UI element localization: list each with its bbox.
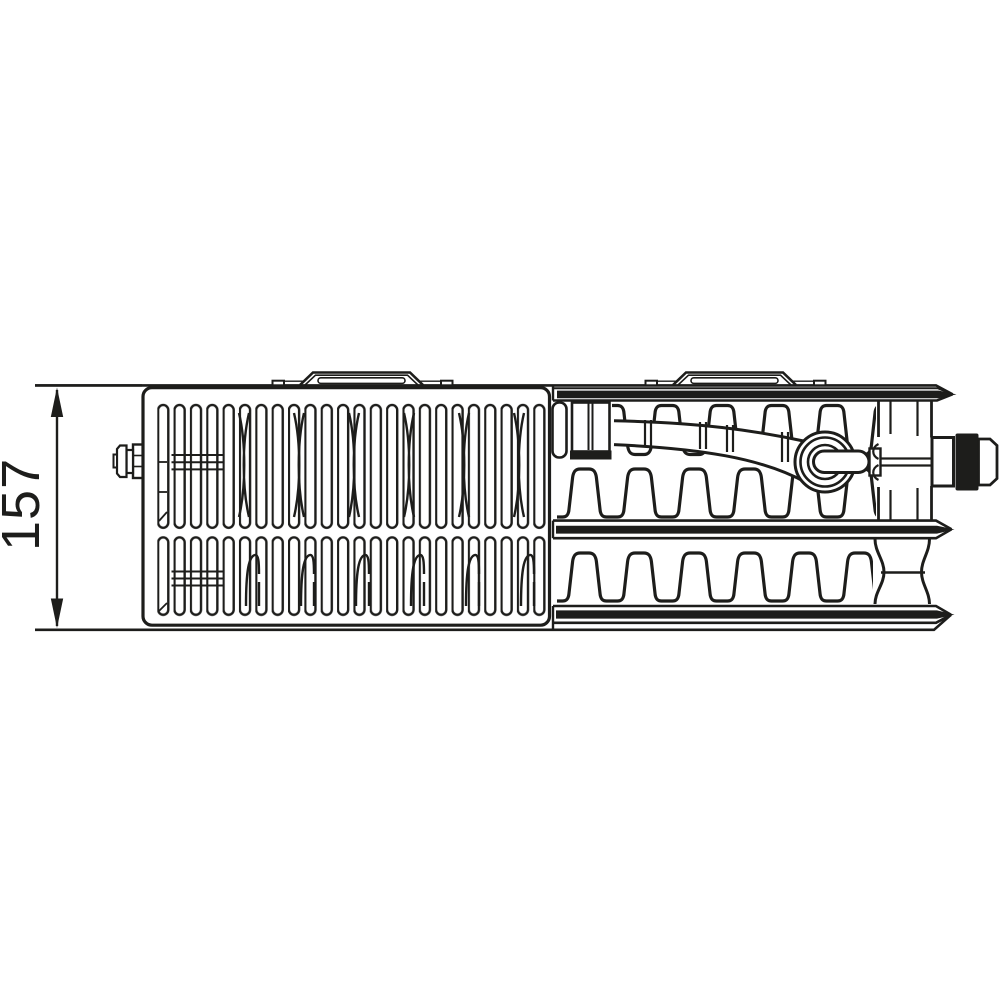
end-plate-vase [875, 539, 930, 604]
bracket-foot [273, 381, 285, 386]
bracket-foot [441, 381, 453, 386]
knurled-ring [956, 434, 979, 491]
left-plug-fitting [114, 445, 145, 479]
bracket-foot [646, 381, 658, 386]
dimension-annotation: 157 [0, 385, 142, 629]
radiator-technical-drawing-page: 157 [0, 0, 1000, 1000]
valve-body [932, 438, 954, 487]
wall-bracket-right [646, 373, 826, 386]
arrowhead-down-icon [51, 599, 63, 629]
radiator-grille [143, 388, 550, 626]
valve-tail-fitting [932, 434, 997, 491]
arrowhead-up-icon [51, 388, 63, 418]
bracket-foot [814, 381, 826, 386]
bracket-slot [691, 378, 778, 384]
bracket-slot [318, 378, 405, 384]
section-middle-panel [553, 521, 955, 539]
section-top-panel [553, 385, 957, 400]
end-plate-columns [873, 401, 931, 604]
radiator-top-view-diagram: 157 [0, 0, 1000, 1000]
convector-fins-row-3 [557, 551, 873, 604]
valve-stem-guide [870, 449, 881, 476]
end-cap [979, 439, 998, 485]
valve-tube [814, 451, 870, 473]
section-cut-channels [553, 403, 612, 460]
grille-louvres-lower [157, 536, 546, 617]
section-bottom-panel [553, 606, 955, 630]
dimension-label: 157 [0, 458, 51, 551]
wall-bracket-left [273, 373, 453, 386]
